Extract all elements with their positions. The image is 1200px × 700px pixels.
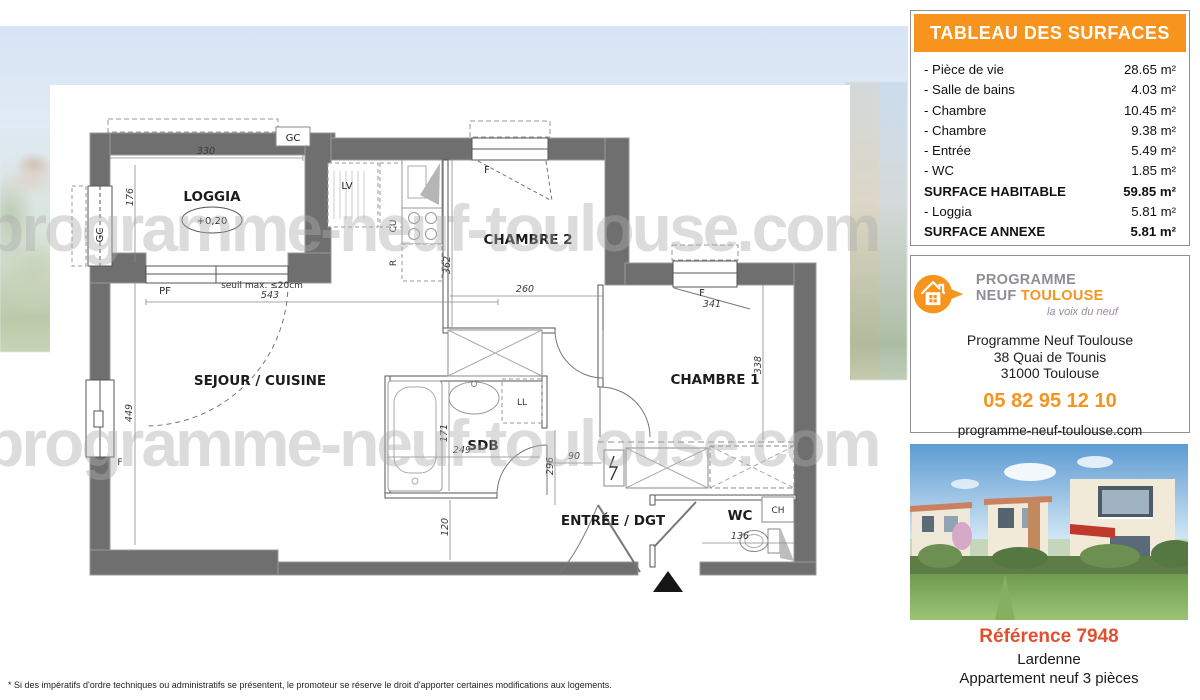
row-label: SURFACE HABITABLE (924, 182, 1066, 202)
opening-label-f-sejour: F (117, 458, 122, 468)
room-label-chambre2: CHAMBRE 2 (483, 232, 572, 248)
table-row: - Pièce de vie28.65 m² (924, 60, 1176, 80)
room-label-wc: WC (728, 508, 753, 524)
table-row: - Salle de bains4.03 m² (924, 80, 1176, 100)
agency-website: programme-neuf-toulouse.com (911, 423, 1189, 438)
house-logo-icon (911, 270, 968, 320)
row-label: - Loggia (924, 202, 972, 222)
loggia-level: +0,20 (197, 216, 228, 227)
table-row-total-annexe: SURFACE ANNEXE5.81 m² (924, 222, 1176, 242)
table-row: - Chambre10.45 m² (924, 101, 1176, 121)
closets (448, 330, 794, 488)
fixture-label-r: R (389, 260, 399, 266)
faded-photo-right (845, 82, 907, 380)
row-label: SURFACE ANNEXE (924, 222, 1045, 242)
room-label-sdb: SDB (467, 438, 498, 454)
dim-338: 338 (753, 356, 764, 374)
dim-296: 296 (545, 457, 556, 475)
row-label: - Chambre (924, 121, 986, 141)
row-value: 5.49 m² (1131, 141, 1176, 161)
opening-label-f-chambre1: F (699, 288, 705, 299)
listing-block: Référence 7948 Lardenne Appartement neuf… (910, 626, 1188, 687)
wc-fixtures (740, 497, 794, 561)
room-label-loggia: LOGGIA (183, 189, 241, 205)
agency-name: Programme Neuf Toulouse (911, 332, 1189, 349)
agency-phone: 05 82 95 12 10 (911, 390, 1189, 413)
opening-label-pf: PF (159, 286, 171, 297)
kitchen-fixtures (328, 160, 442, 281)
row-label: - Entrée (924, 141, 971, 161)
entrance-arrow-icon (653, 571, 683, 592)
dim-449: 449 (124, 404, 135, 422)
bathroom-fixtures (388, 379, 542, 491)
row-value: 59.85 m² (1123, 182, 1176, 202)
row-value: 5.81 m² (1131, 202, 1176, 222)
dim-176: 176 (125, 188, 136, 206)
brand-name-orange: TOULOUSE (1021, 288, 1104, 304)
agency-city: 31000 Toulouse (911, 365, 1189, 382)
dim-136: 136 (731, 531, 749, 542)
dim-260: 260 (516, 284, 534, 295)
listing-type: Appartement neuf 3 pièces (910, 670, 1188, 687)
row-value: 4.03 m² (1131, 80, 1176, 100)
disclaimer-note: * Si des impératifs d'ordre techniques o… (8, 680, 612, 690)
dim-120: 120 (440, 518, 451, 536)
row-value: 9.38 m² (1131, 121, 1176, 141)
row-label: - Chambre (924, 101, 986, 121)
agency-street: 38 Quai de Tounis (911, 349, 1189, 366)
brand-block: PROGRAMME NEUF TOULOUSE la voix du neuf (976, 272, 1189, 318)
partitions (385, 160, 796, 567)
brand-tagline: la voix du neuf (976, 306, 1189, 318)
table-row: - Chambre9.38 m² (924, 121, 1176, 141)
residence-photo (910, 444, 1188, 620)
row-value: 5.81 m² (1131, 222, 1176, 242)
fixture-label-lv: LV (341, 181, 352, 192)
table-row-total-habitable: SURFACE HABITABLE59.85 m² (924, 182, 1176, 202)
dim-330: 330 (197, 146, 215, 157)
surfaces-title: TABLEAU DES SURFACES (914, 14, 1186, 52)
row-label: - Salle de bains (924, 80, 1015, 100)
room-label-chambre1: CHAMBRE 1 (670, 372, 759, 388)
row-value: 10.45 m² (1124, 101, 1176, 121)
dim-249: 249 (453, 445, 471, 456)
surfaces-panel: TABLEAU DES SURFACES - Pièce de vie28.65… (910, 10, 1190, 246)
fixture-label-cu: CU (389, 220, 399, 233)
fixture-label-ch: CH (771, 506, 784, 516)
row-value: 28.65 m² (1124, 60, 1176, 80)
dim-341: 341 (703, 299, 721, 310)
floor-plan: LOGGIA +0,20 SEJOUR / CUISINE CHAMBRE 2 … (50, 85, 850, 620)
listing-location: Lardenne (910, 651, 1188, 668)
faded-photo-left (0, 128, 52, 352)
opening-label-gc-top: GC (286, 133, 301, 144)
row-label: - Pièce de vie (924, 60, 1004, 80)
agency-address: Programme Neuf Toulouse 38 Quai de Touni… (911, 332, 1189, 382)
row-value: 1.85 m² (1131, 161, 1176, 181)
table-row: - Entrée5.49 m² (924, 141, 1176, 161)
agency-panel: PROGRAMME NEUF TOULOUSE la voix du neuf … (910, 255, 1190, 433)
dim-362: 362 (442, 256, 453, 274)
fixture-label-ll: LL (517, 398, 527, 408)
dim-90: 90 (568, 451, 580, 462)
opening-label-f-chambre2: F (484, 165, 490, 176)
table-row: - Loggia5.81 m² (924, 202, 1176, 222)
surfaces-rows: - Pièce de vie28.65 m² - Salle de bains4… (914, 52, 1186, 243)
dim-543: 543 (261, 290, 279, 301)
row-label: - WC (924, 161, 954, 181)
table-row: - WC1.85 m² (924, 161, 1176, 181)
room-label-entree: ENTRÉE / DGT (561, 512, 666, 529)
dim-171: 171 (439, 424, 450, 442)
room-label-sejour: SEJOUR / CUISINE (194, 373, 326, 389)
opening-label-gc-left: GC (95, 228, 106, 243)
listing-reference: Référence 7948 (910, 626, 1188, 648)
flyer-page: LOGGIA +0,20 SEJOUR / CUISINE CHAMBRE 2 … (0, 0, 1200, 700)
